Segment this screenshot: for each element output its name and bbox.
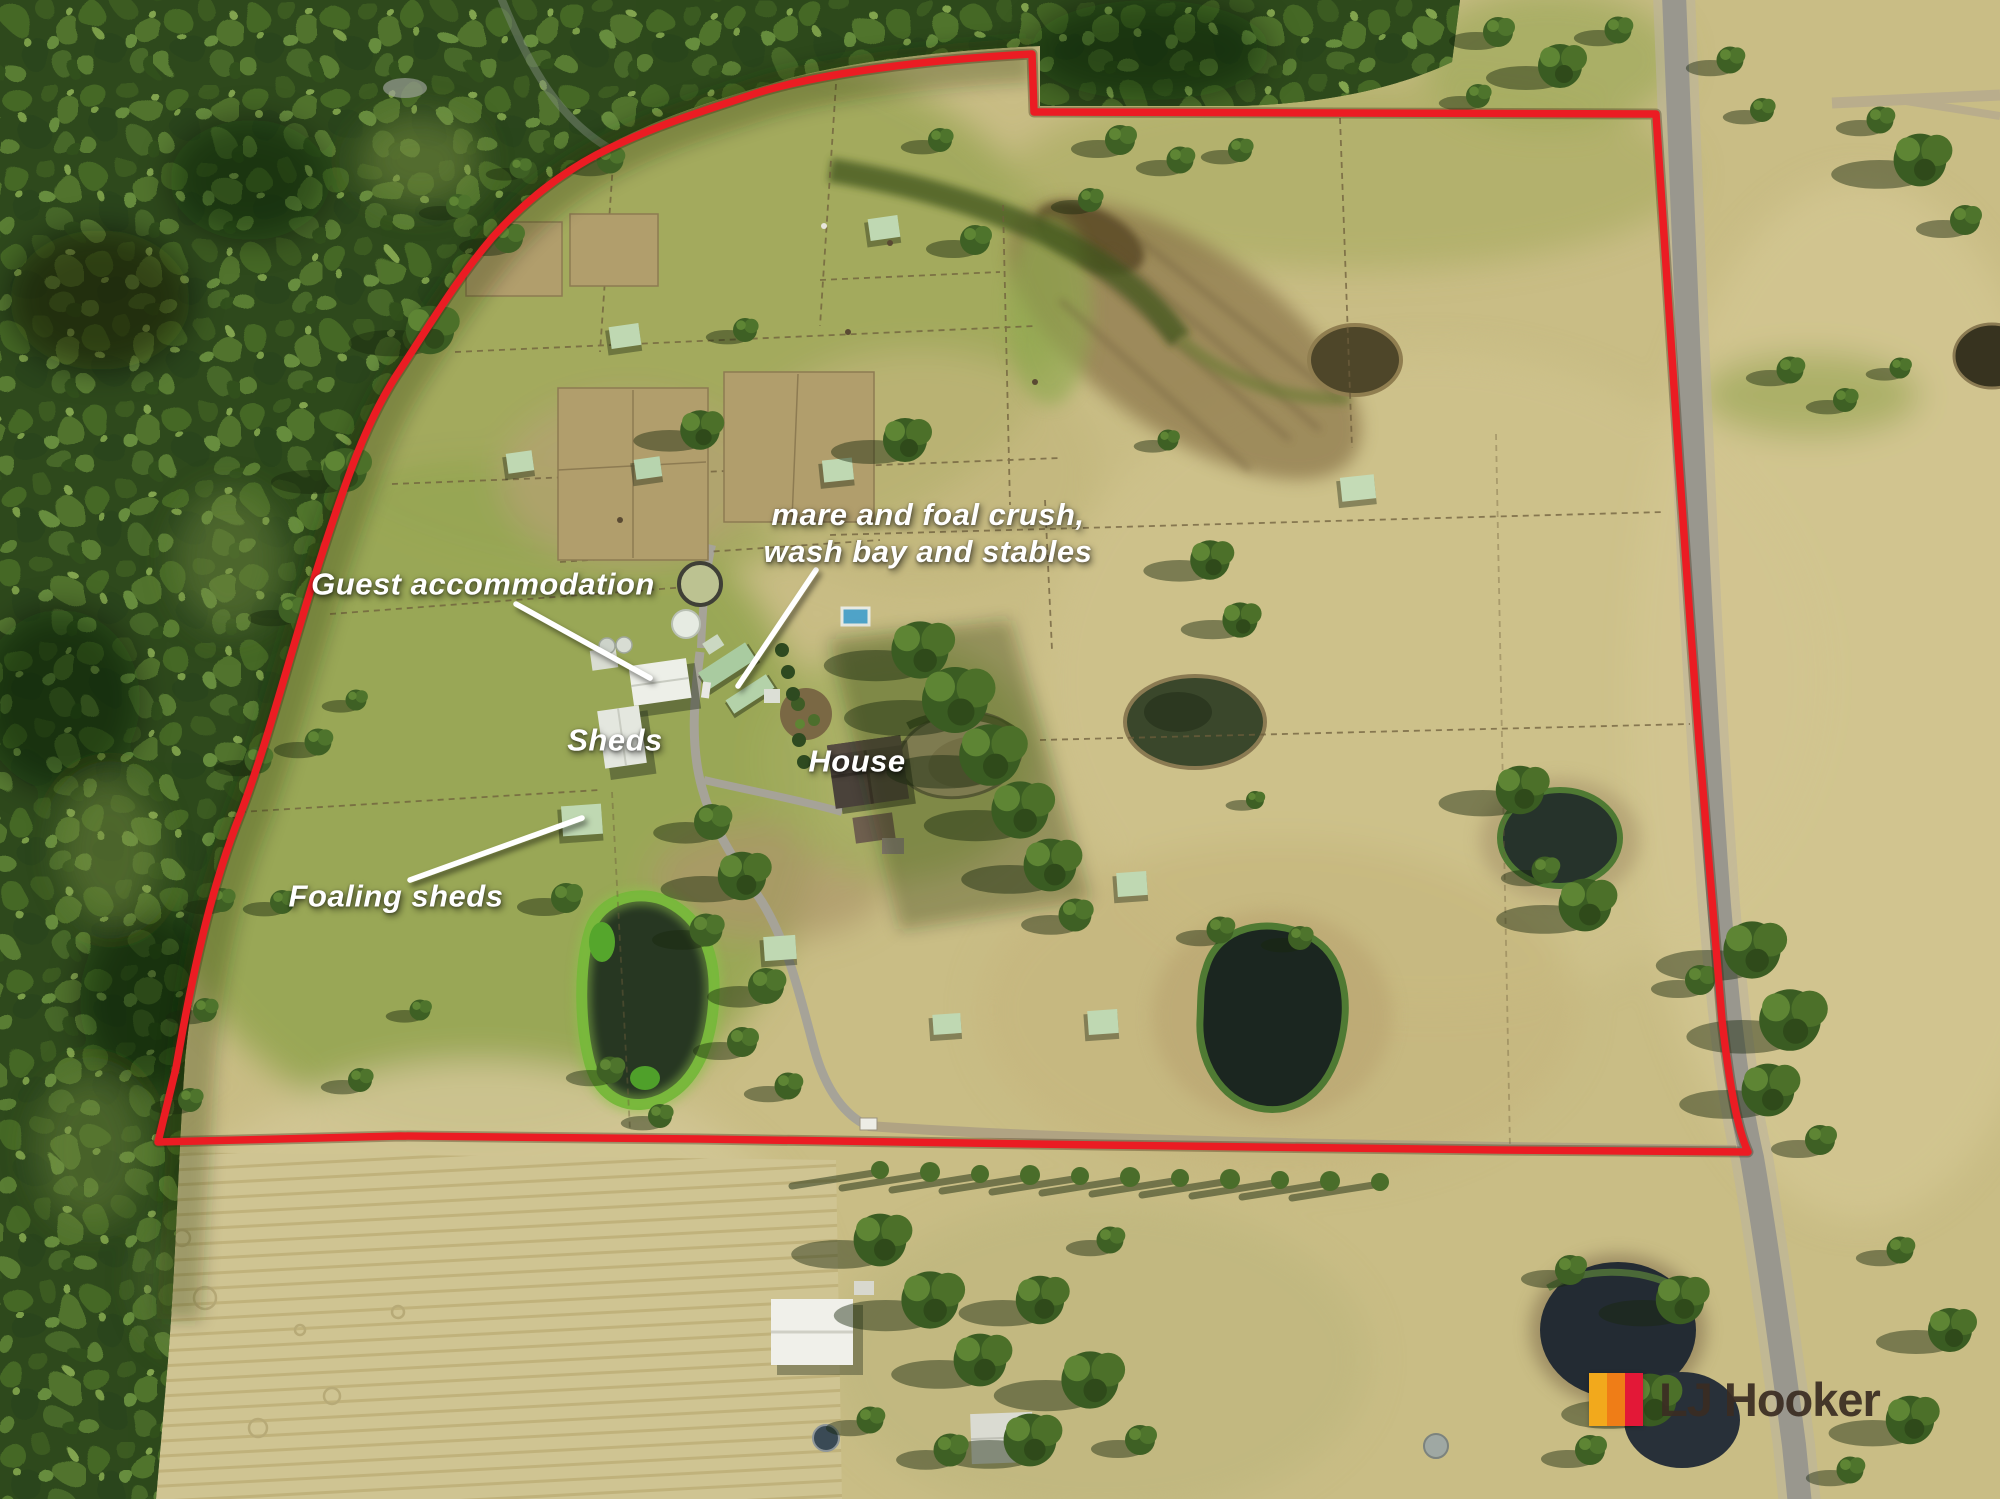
lj-hooker-logo-text: LJ Hooker bbox=[1659, 1372, 1880, 1427]
lj-hooker-logo: LJ Hooker bbox=[1589, 1372, 1880, 1427]
aerial-property-photo: mare and foal crush, wash bay and stable… bbox=[0, 0, 2000, 1499]
logo-stripe-yellow bbox=[1589, 1373, 1607, 1426]
logo-stripe-orange bbox=[1607, 1373, 1625, 1426]
aerial-scene bbox=[0, 0, 2000, 1499]
lj-hooker-logo-mark-icon bbox=[1589, 1373, 1643, 1426]
mown-hay-field bbox=[140, 1152, 842, 1499]
logo-stripe-red bbox=[1625, 1373, 1643, 1426]
